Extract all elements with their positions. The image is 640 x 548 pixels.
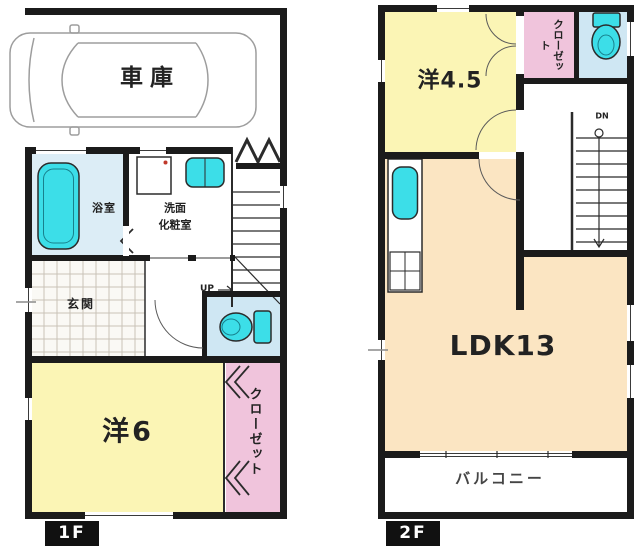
car-mirror-icon: [70, 25, 79, 33]
floor2-badge: 2F: [386, 521, 440, 546]
closet2f-label: クローゼット: [538, 18, 564, 72]
floor-plan-canvas: [0, 0, 640, 548]
bath-label: 浴室: [92, 203, 116, 216]
stairs-dn-label: DN: [595, 111, 608, 120]
ldk-label: LDK13: [450, 330, 557, 362]
kitchen-sink-icon: [393, 167, 418, 219]
washroom-label-line2: 化粧室: [159, 220, 192, 233]
garage-label: 車庫: [120, 65, 180, 91]
stair-break-symbol: [236, 140, 280, 162]
toilet1f-door-arc: [155, 300, 203, 348]
hall2f-floor: [524, 159, 627, 250]
washroom-label-line1: 洗面: [164, 203, 186, 216]
entrance-label: 玄関: [67, 298, 95, 312]
closet1f-label: クローゼット: [246, 387, 261, 477]
bedroom2f-label: 洋4.5: [418, 68, 483, 93]
stairs-up-label: UP: [200, 284, 214, 294]
toilet1f-tank-icon: [254, 311, 271, 343]
balcony-label: バルコニー: [455, 470, 545, 487]
bedroom1f-label: 洋6: [102, 416, 154, 447]
floor1-badge: 1F: [45, 521, 99, 546]
toilet1f-bowl-icon: [220, 313, 252, 341]
toilet2f-bowl-icon: [592, 25, 620, 59]
car-mirror-icon: [70, 127, 79, 135]
